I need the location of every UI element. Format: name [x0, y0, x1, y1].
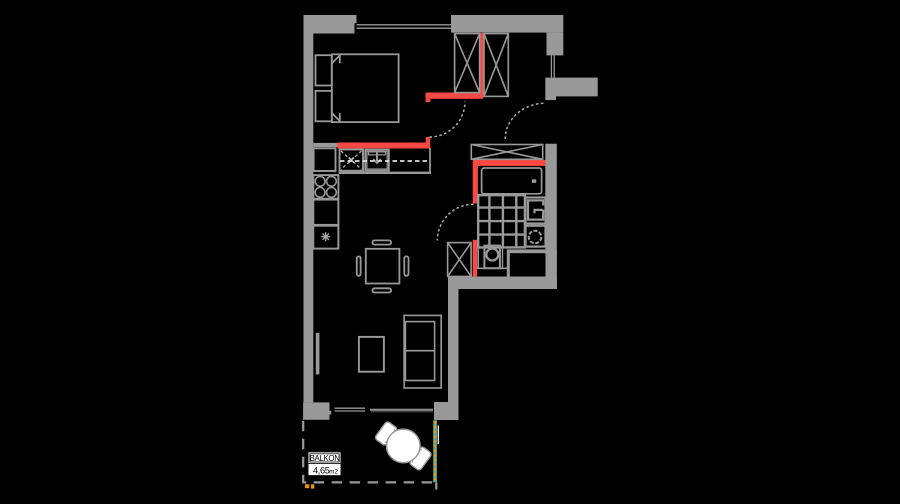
svg-text:4,65: 4,65	[313, 465, 330, 475]
svg-text:BALKON: BALKON	[310, 454, 341, 463]
svg-text:m2: m2	[329, 468, 338, 475]
